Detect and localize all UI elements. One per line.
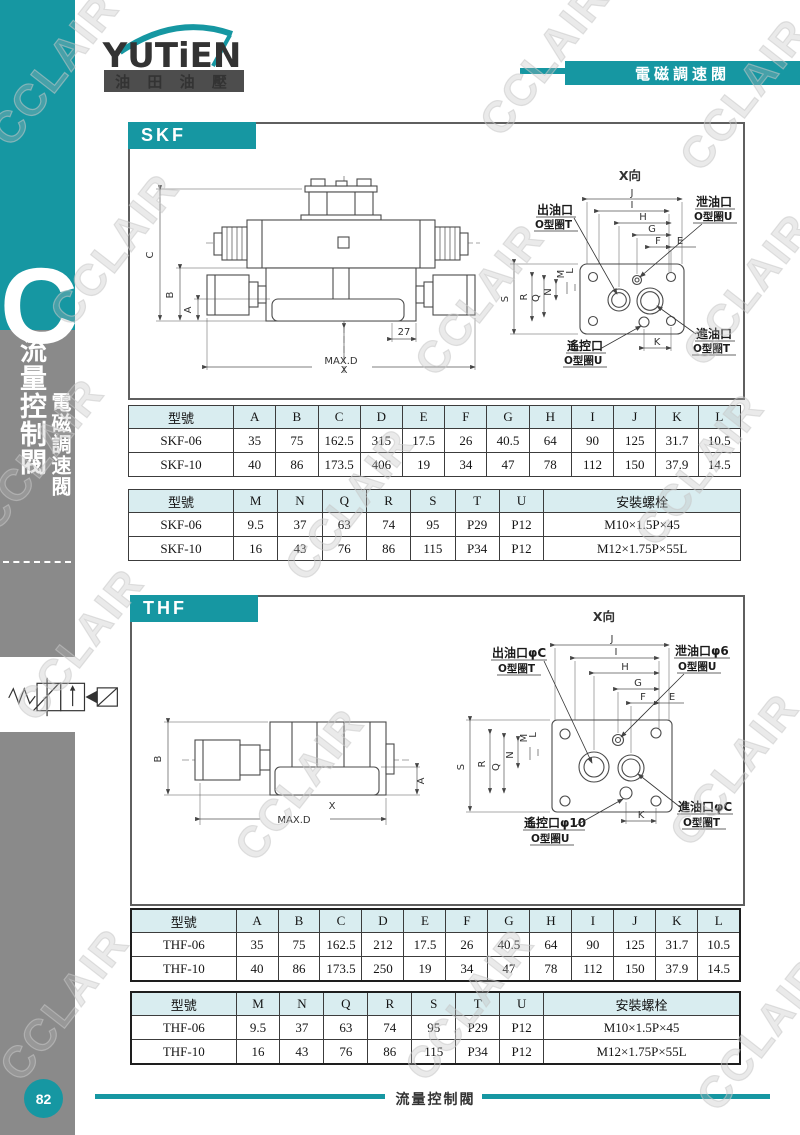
value-cell: 64: [529, 429, 571, 453]
port-label-drain-oring: O型圈U: [678, 660, 716, 673]
dim-label-x: X: [329, 801, 336, 812]
yutien-logo: YUTiEN 油 田 油 壓: [92, 14, 262, 100]
header-row: 型號ABCDEFGHIJKL: [131, 909, 740, 933]
value-cell: 40: [236, 957, 278, 982]
thf-table2-wrap: 型號MNQRSTU安裝螺栓THF-069.537637495P29P12M10×…: [130, 991, 741, 1065]
dim-label-q: Q: [531, 294, 542, 302]
model-cell: THF-06: [131, 933, 236, 957]
dim-label-e: E: [677, 236, 683, 247]
port-label-drain: 泄油口: [696, 194, 732, 209]
value-cell: 76: [322, 537, 366, 561]
value-cell: 26: [445, 429, 487, 453]
skf-section-box: SKF: [128, 122, 745, 400]
thf-dimension-table-2: 型號MNQRSTU安裝螺栓THF-069.537637495P29P12M10×…: [130, 991, 741, 1065]
value-cell: 19: [402, 453, 444, 477]
sidebar-gray-band-lower: [0, 732, 75, 1135]
value-cell: 74: [368, 1016, 412, 1040]
thf-top-view-drawing: [552, 720, 672, 812]
skf-view-title: X向: [619, 168, 641, 183]
column-header: Q: [324, 992, 368, 1016]
column-header: A: [234, 406, 276, 429]
value-cell: 90: [572, 933, 614, 957]
column-header: M: [236, 992, 280, 1016]
dim-label-e: E: [669, 692, 675, 703]
footer-rule-left: [95, 1094, 385, 1099]
skf-drawings: C B A X 27 MAX.D: [130, 124, 743, 398]
column-header: S: [411, 490, 455, 513]
column-header: B: [278, 909, 320, 933]
value-cell: 17.5: [402, 429, 444, 453]
skf-dimension-table-2: 型號MNQRSTU安裝螺栓SKF-069.537637495P29P12M10×…: [128, 489, 741, 561]
value-cell: 37: [280, 1016, 324, 1040]
value-cell: 14.5: [698, 957, 740, 982]
value-cell: P29: [456, 1016, 500, 1040]
column-header: B: [276, 406, 318, 429]
value-cell: 74: [366, 513, 410, 537]
port-label-remote: 遙控口φ10: [524, 815, 586, 830]
category-banner: 電磁調速閥: [565, 61, 800, 85]
value-cell: 35: [234, 429, 276, 453]
column-header: Q: [322, 490, 366, 513]
value-cell: 40.5: [488, 933, 530, 957]
dim-label-h: H: [639, 212, 647, 223]
value-cell: 78: [529, 453, 571, 477]
value-cell: 47: [487, 453, 529, 477]
value-cell: 31.7: [656, 429, 698, 453]
value-cell: 115: [411, 537, 455, 561]
column-header: I: [571, 406, 613, 429]
port-label-inlet-oring: O型圈T: [693, 342, 731, 355]
thf-section-box: THF: [130, 595, 745, 906]
model-cell: SKF-06: [129, 513, 234, 537]
value-cell: 37.9: [656, 957, 698, 982]
value-cell: 173.5: [320, 957, 362, 982]
value-cell: 19: [404, 957, 446, 982]
column-header: T: [455, 490, 499, 513]
value-cell: 43: [280, 1040, 324, 1065]
hydraulic-valve-symbol: [6, 676, 121, 718]
value-cell: P34: [455, 537, 499, 561]
column-header: S: [412, 992, 456, 1016]
value-cell: 112: [572, 957, 614, 982]
column-header: F: [446, 909, 488, 933]
table-row: SKF-1016437686115P34P12M12×1.75P×55L: [129, 537, 741, 561]
value-cell: 40.5: [487, 429, 529, 453]
thf-view-title: X向: [593, 609, 615, 624]
column-header: 安裝螺栓: [544, 490, 741, 513]
value-cell: 406: [360, 453, 402, 477]
port-label-remote-oring: O型圈U: [564, 354, 602, 367]
dim-label-b: B: [165, 291, 176, 298]
value-cell: 31.7: [656, 933, 698, 957]
value-cell: 16: [234, 537, 278, 561]
logo-subtext: 油 田 油 壓: [115, 73, 233, 91]
dim-label-l: L: [528, 732, 539, 738]
value-cell: 173.5: [318, 453, 360, 477]
column-header: H: [529, 406, 571, 429]
dim-label-a: A: [183, 306, 194, 313]
sidebar-title-solenoid-speed: 電磁調速閥: [45, 392, 74, 497]
model-cell: SKF-10: [129, 453, 234, 477]
value-cell: M12×1.75P×55L: [544, 1040, 740, 1065]
value-cell: 37: [278, 513, 322, 537]
table-row: SKF-063575162.531517.52640.5649012531.71…: [129, 429, 741, 453]
column-header: 型號: [129, 490, 234, 513]
value-cell: 47: [488, 957, 530, 982]
value-cell: 212: [362, 933, 404, 957]
value-cell: 43: [278, 537, 322, 561]
dim-label-n: N: [543, 288, 554, 295]
value-cell: 16: [236, 1040, 280, 1065]
sidebar-dashed-divider: [3, 561, 71, 563]
dim-label-i: I: [631, 200, 634, 211]
dim-label-f: F: [655, 236, 661, 247]
column-header: R: [368, 992, 412, 1016]
column-header: U: [499, 490, 543, 513]
column-header: 型號: [131, 992, 236, 1016]
model-cell: THF-10: [131, 1040, 236, 1065]
dim-label-a: A: [416, 777, 427, 784]
value-cell: 10.5: [698, 933, 740, 957]
value-cell: 250: [362, 957, 404, 982]
footer-rule-right: [482, 1094, 770, 1099]
header-row: 型號MNQRSTU安裝螺栓: [131, 992, 740, 1016]
port-label-outlet: 出油口: [537, 202, 573, 217]
skf-front-view-drawing: [206, 176, 480, 374]
value-cell: 162.5: [318, 429, 360, 453]
value-cell: 115: [412, 1040, 456, 1065]
dim-label-k: K: [654, 337, 661, 348]
value-cell: 90: [571, 429, 613, 453]
value-cell: P12: [500, 1016, 544, 1040]
column-header: K: [656, 406, 698, 429]
port-label-outlet: 出油口φC: [492, 645, 546, 660]
value-cell: 162.5: [320, 933, 362, 957]
dim-label-g: G: [634, 678, 642, 689]
value-cell: 17.5: [404, 933, 446, 957]
thf-side-view-drawing: [182, 722, 410, 795]
column-header: D: [360, 406, 402, 429]
value-cell: 63: [322, 513, 366, 537]
dim-label-i: I: [615, 647, 618, 658]
dim-label-r: R: [519, 293, 530, 300]
value-cell: 34: [446, 957, 488, 982]
model-cell: SKF-06: [129, 429, 234, 453]
thf-drawings: B A X MAX.D: [132, 597, 743, 904]
value-cell: 37.9: [656, 453, 698, 477]
skf-table1-wrap: 型號ABCDEFGHIJKLSKF-063575162.531517.52640…: [128, 405, 741, 477]
dim-label-s: S: [456, 764, 467, 770]
dim-label-c: C: [145, 251, 156, 258]
column-header: K: [656, 909, 698, 933]
table-row: THF-069.537637495P29P12M10×1.5P×45: [131, 1016, 740, 1040]
thf-table1-wrap: 型號ABCDEFGHIJKLTHF-063575162.521217.52640…: [130, 908, 741, 982]
value-cell: P12: [499, 513, 543, 537]
catalog-page: CCLAIR CCLAIR CCLAIR CCLAIR CCLAIR CCLAI…: [0, 0, 800, 1135]
dim-label-f: F: [640, 692, 646, 703]
column-header: E: [404, 909, 446, 933]
dim-label-maxd: MAX.D: [277, 815, 310, 826]
dim-label-l: L: [565, 268, 576, 274]
table-row: SKF-104086173.54061934477811215037.914.5: [129, 453, 741, 477]
table-row: THF-104086173.52501934477811215037.914.5: [131, 957, 740, 982]
column-header: H: [530, 909, 572, 933]
column-header: 型號: [129, 406, 234, 429]
page-number-badge: 82: [24, 1079, 63, 1118]
footer-title: 流量控制閥: [388, 1089, 483, 1109]
value-cell: 14.5: [698, 453, 740, 477]
value-cell: 86: [278, 957, 320, 982]
value-cell: 75: [278, 933, 320, 957]
thf-dimension-table-1: 型號ABCDEFGHIJKLTHF-063575162.521217.52640…: [130, 908, 741, 982]
value-cell: 35: [236, 933, 278, 957]
column-header: R: [366, 490, 410, 513]
column-header: N: [278, 490, 322, 513]
header-row: 型號ABCDEFGHIJKL: [129, 406, 741, 429]
header-row: 型號MNQRSTU安裝螺栓: [129, 490, 741, 513]
skf-table2-wrap: 型號MNQRSTU安裝螺栓SKF-069.537637495P29P12M10×…: [128, 489, 741, 561]
dim-label-g: G: [648, 224, 656, 235]
value-cell: M12×1.75P×55L: [544, 537, 741, 561]
port-label-inlet: 進油口φC: [678, 799, 732, 814]
port-label-drain-oring: O型圈U: [694, 210, 732, 223]
value-cell: 125: [614, 429, 656, 453]
column-header: E: [402, 406, 444, 429]
dim-label-r: R: [477, 760, 488, 767]
value-cell: 315: [360, 429, 402, 453]
value-cell: M10×1.5P×45: [544, 1016, 740, 1040]
port-label-inlet: 進油口: [696, 326, 732, 341]
dim-label-27: 27: [398, 327, 411, 338]
value-cell: 150: [614, 453, 656, 477]
port-label-inlet-oring: O型圈T: [683, 816, 721, 829]
column-header: G: [487, 406, 529, 429]
port-label-remote-oring: O型圈U: [531, 832, 569, 845]
dim-label-h: H: [621, 662, 629, 673]
value-cell: 26: [446, 933, 488, 957]
port-label-remote: 遙控口: [567, 338, 603, 353]
column-header: T: [456, 992, 500, 1016]
value-cell: P12: [500, 1040, 544, 1065]
column-header: L: [698, 406, 740, 429]
value-cell: 9.5: [234, 513, 278, 537]
table-row: THF-1016437686115P34P12M12×1.75P×55L: [131, 1040, 740, 1065]
value-cell: P29: [455, 513, 499, 537]
dim-label-n: N: [505, 751, 516, 758]
value-cell: 95: [411, 513, 455, 537]
value-cell: 78: [530, 957, 572, 982]
value-cell: 40: [234, 453, 276, 477]
value-cell: 75: [276, 429, 318, 453]
value-cell: M10×1.5P×45: [544, 513, 741, 537]
value-cell: 86: [276, 453, 318, 477]
model-cell: THF-10: [131, 957, 236, 982]
value-cell: 76: [324, 1040, 368, 1065]
column-header: G: [488, 909, 530, 933]
port-label-outlet-oring: O型圈T: [498, 662, 536, 675]
skf-dimension-table-1: 型號ABCDEFGHIJKLSKF-063575162.531517.52640…: [128, 405, 741, 477]
dim-label-b: B: [153, 755, 164, 762]
value-cell: P34: [456, 1040, 500, 1065]
dim-label-maxd: MAX.D: [324, 356, 357, 367]
table-row: SKF-069.537637495P29P12M10×1.5P×45: [129, 513, 741, 537]
value-cell: 86: [368, 1040, 412, 1065]
column-header: I: [572, 909, 614, 933]
column-header: 型號: [131, 909, 236, 933]
value-cell: 125: [614, 933, 656, 957]
model-cell: THF-06: [131, 1016, 236, 1040]
value-cell: 112: [571, 453, 613, 477]
dim-label-j: J: [610, 634, 614, 645]
port-label-drain: 泄油口φ6: [675, 643, 729, 658]
port-label-outlet-oring: O型圈T: [535, 218, 573, 231]
value-cell: 150: [614, 957, 656, 982]
value-cell: 9.5: [236, 1016, 280, 1040]
value-cell: P12: [499, 537, 543, 561]
value-cell: 86: [366, 537, 410, 561]
column-header: J: [614, 406, 656, 429]
column-header: 安裝螺栓: [544, 992, 740, 1016]
table-row: THF-063575162.521217.52640.5649012531.71…: [131, 933, 740, 957]
column-header: C: [318, 406, 360, 429]
value-cell: 63: [324, 1016, 368, 1040]
value-cell: 64: [530, 933, 572, 957]
column-header: F: [445, 406, 487, 429]
column-header: J: [614, 909, 656, 933]
banner-accent-strip: [520, 68, 566, 74]
column-header: L: [698, 909, 740, 933]
column-header: A: [236, 909, 278, 933]
dim-label-s: S: [500, 296, 511, 302]
value-cell: 95: [412, 1016, 456, 1040]
model-cell: SKF-10: [129, 537, 234, 561]
dim-label-k: K: [638, 810, 645, 821]
column-header: D: [362, 909, 404, 933]
dim-label-q: Q: [491, 763, 502, 771]
column-header: M: [234, 490, 278, 513]
column-header: C: [320, 909, 362, 933]
skf-top-view-drawing: [580, 264, 684, 334]
column-header: U: [500, 992, 544, 1016]
dim-label-j: J: [630, 188, 634, 199]
value-cell: 10.5: [698, 429, 740, 453]
column-header: N: [280, 992, 324, 1016]
value-cell: 34: [445, 453, 487, 477]
